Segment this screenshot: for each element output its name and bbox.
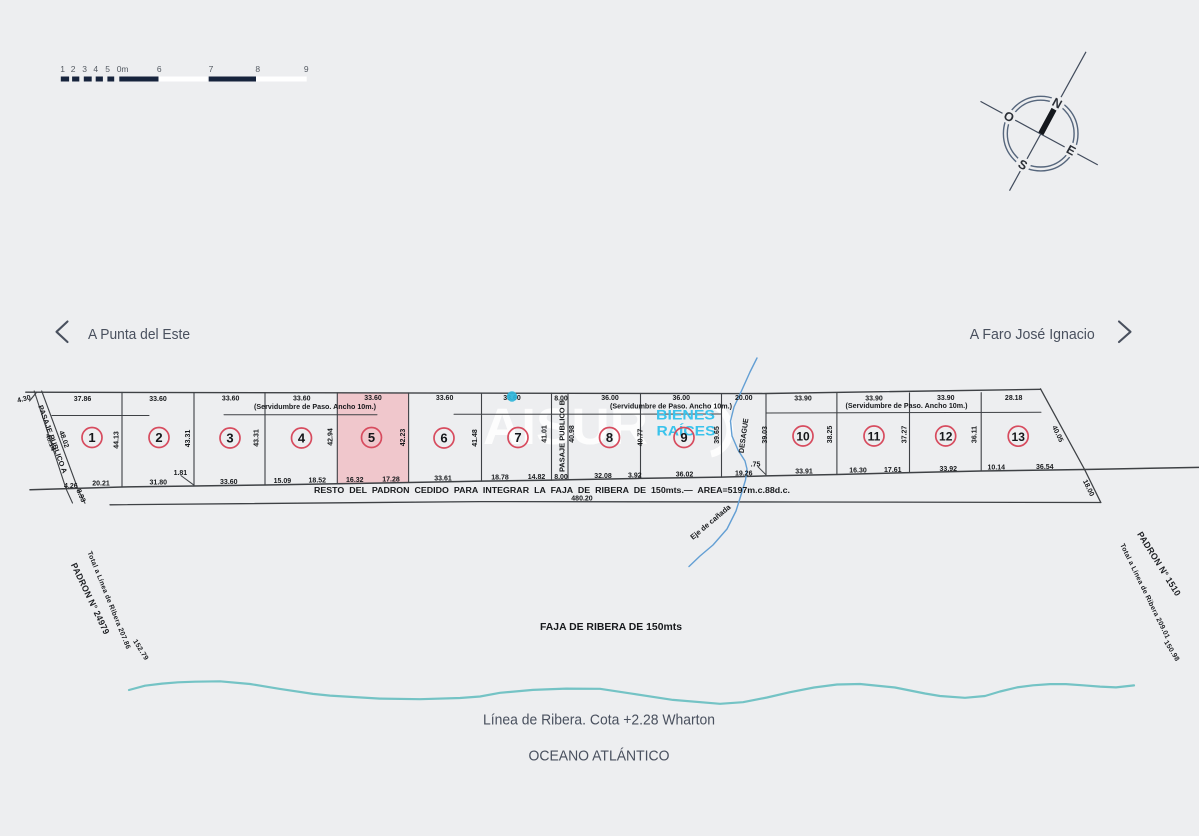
svg-text:33.92: 33.92 bbox=[940, 466, 958, 473]
svg-text:17.28: 17.28 bbox=[382, 477, 400, 484]
svg-text:40.98: 40.98 bbox=[569, 425, 576, 443]
svg-text:15.09: 15.09 bbox=[274, 478, 292, 485]
svg-text:40.77: 40.77 bbox=[638, 429, 645, 447]
svg-text:39.65: 39.65 bbox=[714, 426, 721, 444]
svg-text:33.60: 33.60 bbox=[220, 479, 238, 486]
svg-text:8: 8 bbox=[606, 430, 613, 445]
svg-text:20.00: 20.00 bbox=[735, 395, 753, 402]
svg-text:3: 3 bbox=[82, 64, 87, 74]
svg-text:36.02: 36.02 bbox=[676, 471, 694, 478]
svg-text:33.90: 33.90 bbox=[937, 395, 955, 402]
svg-text:4: 4 bbox=[93, 64, 98, 74]
svg-text:A Punta del Este: A Punta del Este bbox=[88, 326, 190, 343]
svg-text:9: 9 bbox=[304, 64, 309, 74]
svg-text:20.21: 20.21 bbox=[92, 480, 110, 487]
svg-text:4.26: 4.26 bbox=[64, 483, 78, 490]
svg-text:42.94: 42.94 bbox=[328, 428, 335, 446]
svg-text:36.11: 36.11 bbox=[972, 426, 979, 443]
svg-text:2: 2 bbox=[71, 64, 76, 74]
svg-text:4: 4 bbox=[298, 431, 306, 446]
svg-text:13: 13 bbox=[1012, 430, 1026, 444]
svg-text:33.60: 33.60 bbox=[222, 395, 240, 402]
svg-text:37.86: 37.86 bbox=[74, 396, 92, 403]
svg-text:36.00: 36.00 bbox=[601, 395, 619, 402]
svg-text:OCEANO ATLÁNTICO: OCEANO ATLÁNTICO bbox=[529, 748, 670, 765]
svg-text:6: 6 bbox=[440, 431, 447, 446]
svg-text:37.27: 37.27 bbox=[901, 426, 908, 444]
svg-text:41.01: 41.01 bbox=[542, 425, 549, 443]
svg-text:39.03: 39.03 bbox=[762, 426, 769, 444]
svg-text:.75: .75 bbox=[751, 462, 761, 469]
svg-text:1.81: 1.81 bbox=[174, 470, 188, 477]
svg-text:A Faro José Ignacio: A Faro José Ignacio bbox=[970, 326, 1095, 343]
svg-text:16.32: 16.32 bbox=[346, 477, 364, 484]
svg-text:43.31: 43.31 bbox=[185, 430, 192, 448]
svg-text:43.31: 43.31 bbox=[254, 429, 261, 447]
svg-text:7: 7 bbox=[209, 64, 214, 74]
svg-text:33.60: 33.60 bbox=[149, 396, 167, 403]
svg-text:(Servidumbre de Paso. Ancho 10: (Servidumbre de Paso. Ancho 10m.) bbox=[846, 403, 968, 410]
svg-text:5: 5 bbox=[105, 64, 110, 74]
svg-text:8: 8 bbox=[255, 64, 260, 74]
svg-text:32.08: 32.08 bbox=[594, 473, 612, 480]
svg-text:33.90: 33.90 bbox=[794, 396, 812, 403]
svg-text:10.14: 10.14 bbox=[988, 464, 1006, 471]
svg-text:8.00: 8.00 bbox=[554, 474, 568, 481]
svg-text:9: 9 bbox=[680, 430, 687, 445]
svg-text:41.48: 41.48 bbox=[472, 429, 479, 447]
svg-text:36.00: 36.00 bbox=[673, 395, 691, 402]
svg-text:19.26: 19.26 bbox=[735, 470, 753, 477]
svg-text:FAJA DE RIBERA DE 150mts: FAJA DE RIBERA DE 150mts bbox=[540, 622, 682, 633]
svg-text:1: 1 bbox=[88, 430, 95, 445]
svg-text:(Servidumbre de Paso. Ancho 10: (Servidumbre de Paso. Ancho 10m.) bbox=[610, 404, 732, 411]
svg-text:38.25: 38.25 bbox=[827, 426, 834, 444]
svg-text:14.82: 14.82 bbox=[528, 474, 546, 481]
svg-text:12: 12 bbox=[939, 430, 953, 444]
svg-text:18.52: 18.52 bbox=[309, 478, 327, 485]
svg-text:5: 5 bbox=[368, 430, 375, 445]
svg-text:7: 7 bbox=[514, 430, 521, 445]
svg-text:36.54: 36.54 bbox=[1036, 464, 1054, 471]
svg-text:44.13: 44.13 bbox=[113, 431, 120, 449]
svg-text:0m: 0m bbox=[117, 64, 129, 74]
svg-text:28.18: 28.18 bbox=[1005, 395, 1023, 402]
svg-text:480.20: 480.20 bbox=[571, 496, 593, 503]
svg-text:16.30: 16.30 bbox=[849, 467, 867, 474]
svg-text:RESTO DEL PADRON CEDIDO PARA I: RESTO DEL PADRON CEDIDO PARA INTEGRAR LA… bbox=[314, 485, 790, 495]
svg-text:33.60: 33.60 bbox=[436, 395, 454, 402]
svg-text:42.23: 42.23 bbox=[400, 429, 407, 447]
svg-text:33.60: 33.60 bbox=[293, 395, 311, 402]
svg-text:PASAJE PUBLICO B: PASAJE PUBLICO B bbox=[560, 400, 567, 472]
svg-text:17.61: 17.61 bbox=[884, 467, 902, 474]
svg-text:1: 1 bbox=[60, 64, 65, 74]
svg-text:2: 2 bbox=[155, 430, 162, 445]
svg-text:33.90: 33.90 bbox=[865, 395, 883, 402]
svg-text:33.60: 33.60 bbox=[364, 395, 382, 402]
svg-text:18.78: 18.78 bbox=[491, 474, 509, 481]
svg-text:3.92: 3.92 bbox=[628, 472, 642, 479]
svg-text:33.61: 33.61 bbox=[434, 475, 452, 482]
svg-text:33.91: 33.91 bbox=[795, 469, 813, 476]
svg-text:3: 3 bbox=[226, 431, 233, 446]
svg-text:(Servidumbre de Paso. Ancho 10: (Servidumbre de Paso. Ancho 10m.) bbox=[254, 404, 376, 411]
svg-text:10: 10 bbox=[796, 430, 810, 444]
svg-text:11: 11 bbox=[868, 430, 881, 444]
svg-text:Línea de Ribera. Cota +2.28 Wh: Línea de Ribera. Cota +2.28 Wharton bbox=[483, 712, 715, 729]
svg-text:6: 6 bbox=[157, 64, 162, 74]
svg-text:31.80: 31.80 bbox=[150, 480, 168, 487]
